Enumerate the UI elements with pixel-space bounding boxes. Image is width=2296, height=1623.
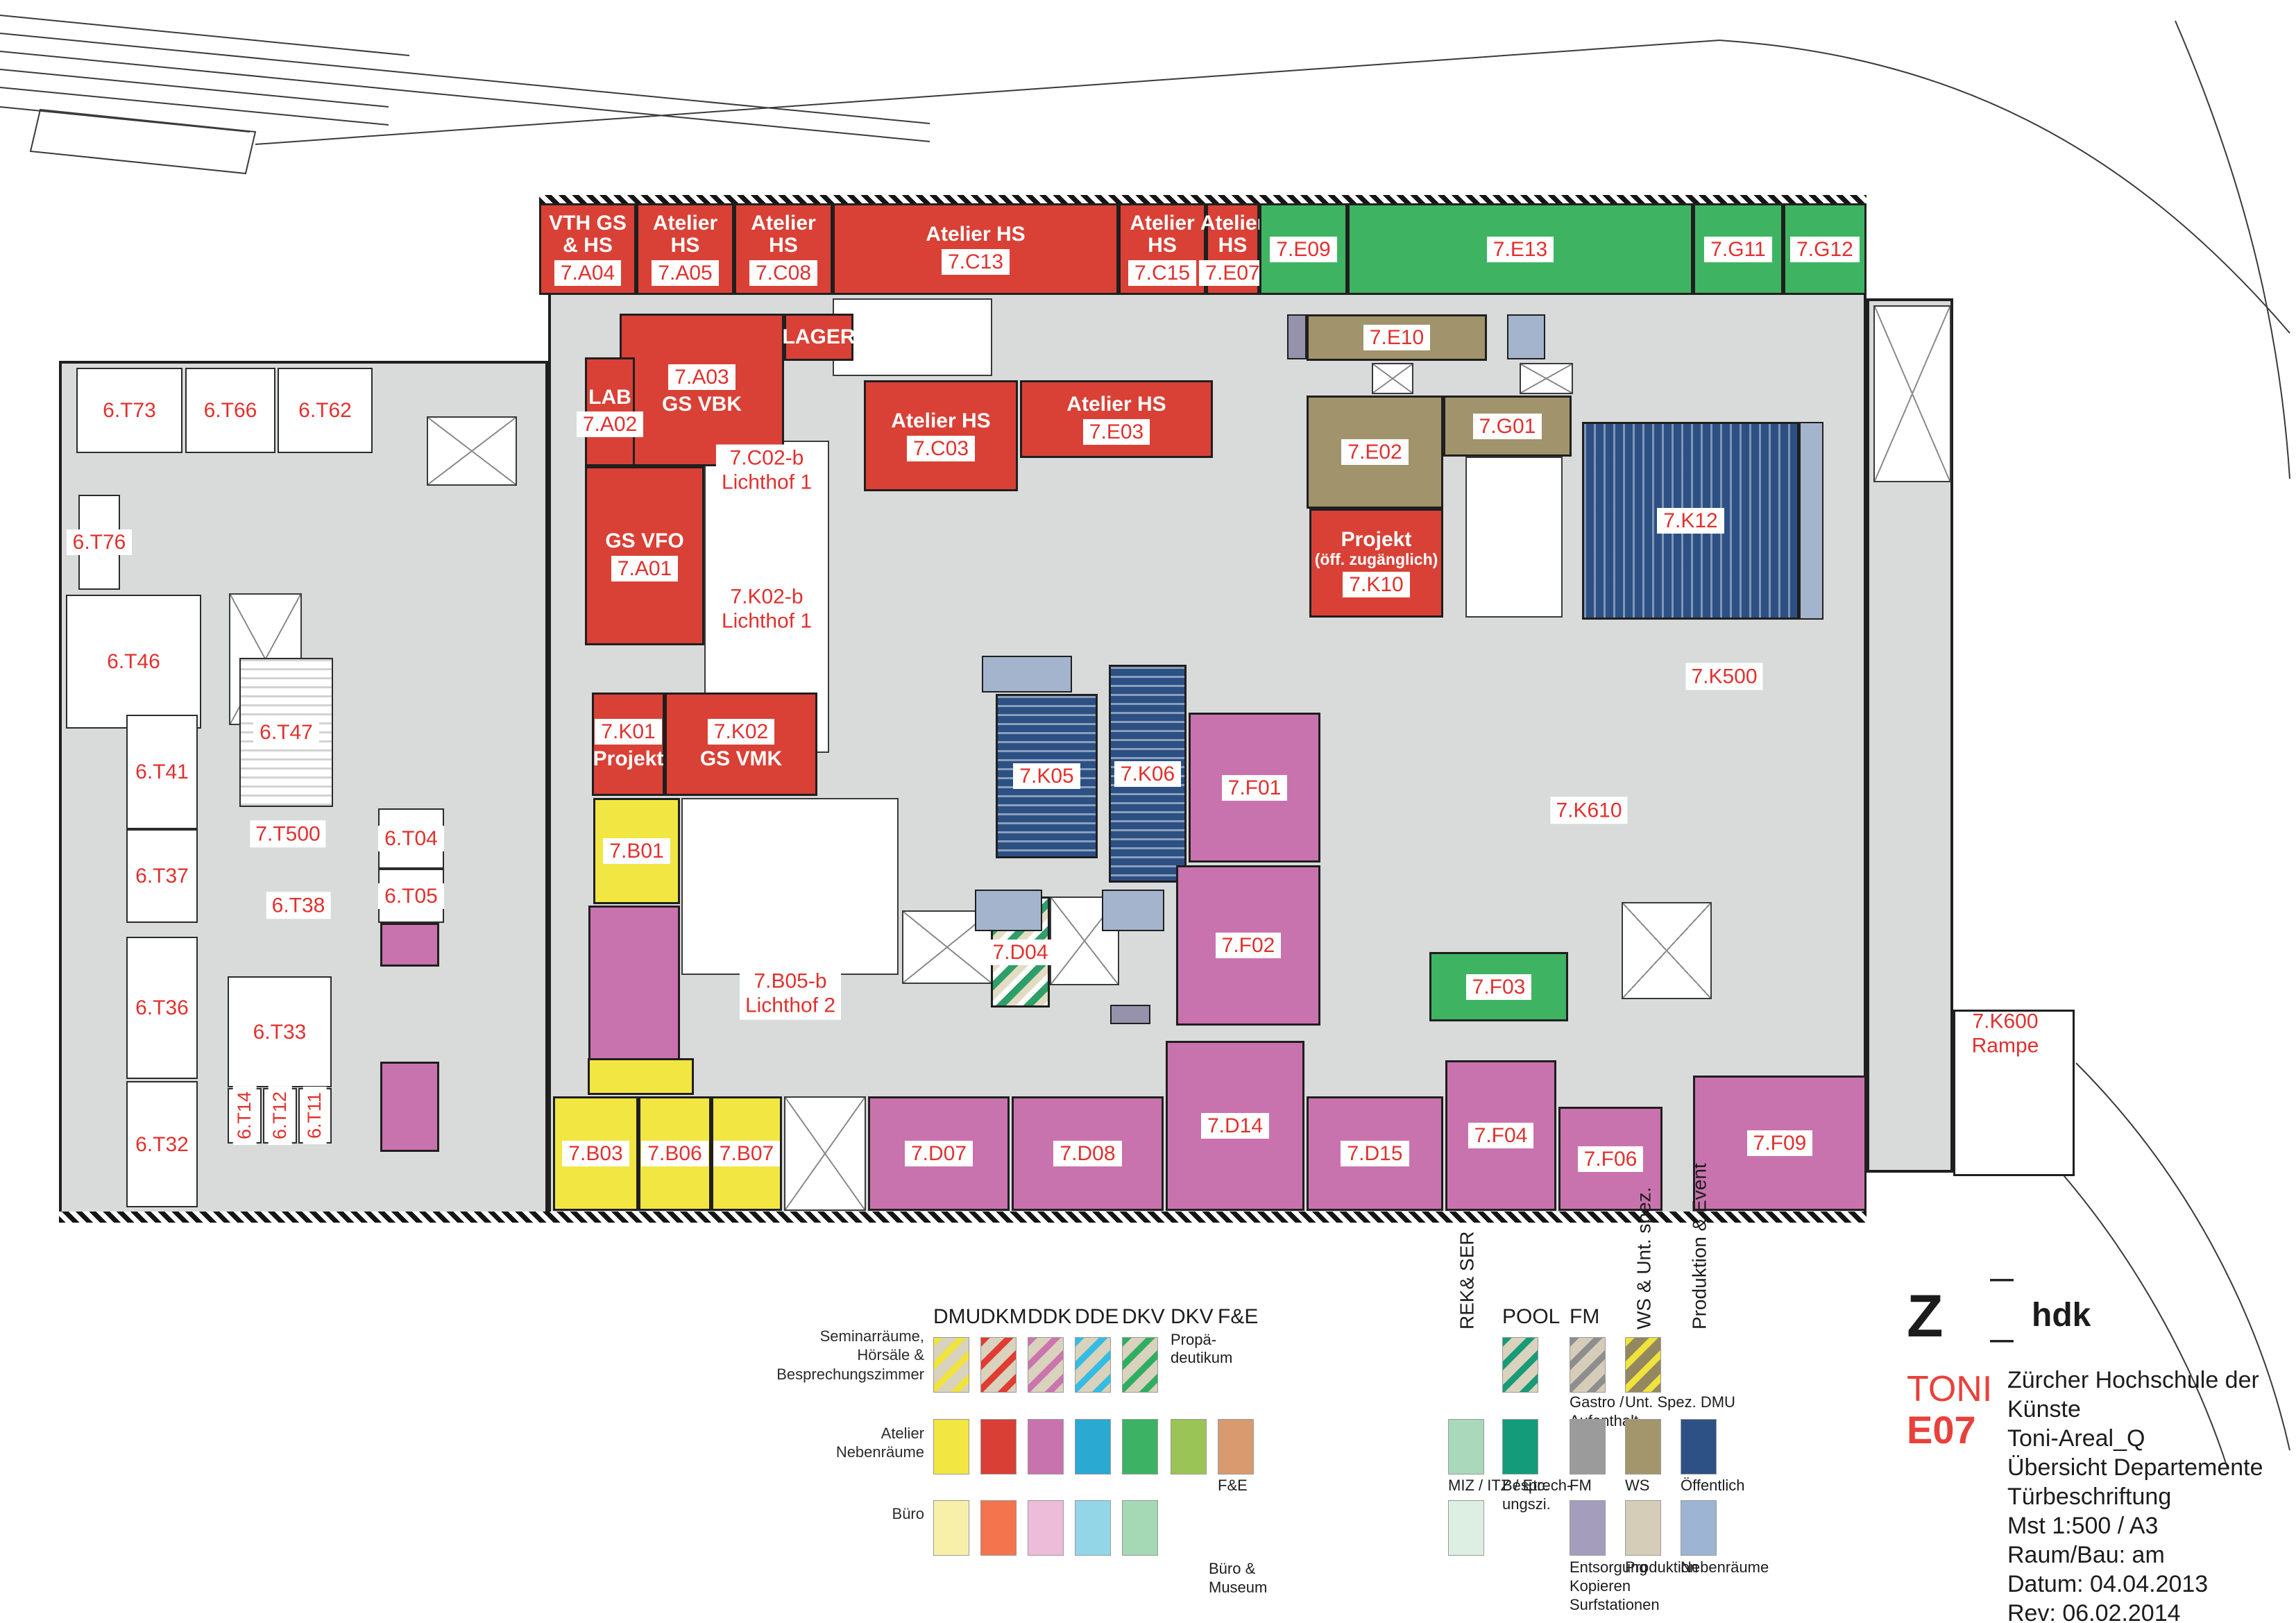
stair-core bbox=[1520, 363, 1573, 394]
room-number-chip: 7.C15 bbox=[1128, 260, 1196, 286]
logo-dash-top: — bbox=[1990, 1266, 2014, 1293]
room-number-chip: 7.B06 bbox=[641, 1141, 708, 1166]
room-number-chip: 7.K01 bbox=[595, 719, 661, 745]
room-6.T04: 6.T04 bbox=[378, 808, 444, 869]
room-7.E07: Atelier HS7.E07 bbox=[1206, 203, 1259, 295]
meta-line: Rev: 06.02.2014 bbox=[2007, 1599, 2208, 1623]
logo-dash-bottom: — bbox=[1990, 1327, 2014, 1354]
legend-swatch bbox=[1028, 1337, 1064, 1393]
room-block bbox=[1102, 890, 1164, 931]
legend-swatch-label: Nebenräume bbox=[1681, 1558, 1769, 1577]
room-block bbox=[975, 890, 1042, 931]
legend-column-header: F&E bbox=[1218, 1306, 1258, 1328]
room-block bbox=[1799, 422, 1823, 620]
room-7.C03: Atelier HS7.C03 bbox=[864, 380, 1018, 491]
room-name-label: GS VFO bbox=[605, 530, 683, 552]
room-number-chip: 7.A04 bbox=[554, 260, 621, 286]
stair-core bbox=[1873, 305, 1951, 482]
room-number-chip: 7.B07 bbox=[713, 1141, 780, 1166]
room-6.T11: 6.T11 bbox=[298, 1088, 332, 1144]
room-name-label: Projekt bbox=[593, 748, 664, 770]
room-7.F03: 7.F03 bbox=[1429, 952, 1568, 1021]
room-7.E03: Atelier HS7.E03 bbox=[1020, 380, 1213, 458]
room-number-chip: 7.G12 bbox=[1790, 237, 1860, 262]
legend-swatch bbox=[980, 1419, 1017, 1475]
org-line: Toni-Areal_Q bbox=[2007, 1424, 2296, 1453]
room-7.A05: Atelier HS7.A05 bbox=[636, 203, 734, 295]
stair-core bbox=[1622, 902, 1712, 999]
legend-caption: Büro & Museum bbox=[1209, 1560, 1267, 1597]
legend-swatch bbox=[933, 1500, 969, 1556]
room-6.T36: 6.T36 bbox=[126, 937, 198, 1079]
room-name-label: GS VBK bbox=[662, 393, 742, 416]
legend-column-header: POOL bbox=[1502, 1306, 1560, 1328]
legend-column-header: DKV bbox=[1171, 1306, 1214, 1328]
area-label: 7.K610 bbox=[1550, 797, 1627, 824]
legend-swatch bbox=[1681, 1500, 1717, 1556]
legend-swatch bbox=[1570, 1337, 1606, 1393]
room-7.D15: 7.D15 bbox=[1307, 1096, 1443, 1211]
courtyard bbox=[833, 298, 992, 376]
legend-swatch-label: FM bbox=[1570, 1477, 1592, 1495]
room-7.D08: 7.D08 bbox=[1012, 1096, 1164, 1211]
room-7.G12: 7.G12 bbox=[1783, 203, 1866, 295]
legend-column-header: DDE bbox=[1075, 1306, 1119, 1328]
legend-swatch bbox=[1075, 1337, 1111, 1393]
room-7.K02: 7.K02GS VMK bbox=[665, 692, 817, 796]
room-7.F01: 7.F01 bbox=[1189, 713, 1320, 863]
area-label: 7.K02-b Lichthof 1 bbox=[716, 584, 817, 636]
room-7.F02: 7.F02 bbox=[1176, 865, 1320, 1026]
room-number-chip: 6.T76 bbox=[67, 529, 133, 555]
legend-swatch bbox=[1075, 1419, 1111, 1475]
room-name-label: Atelier HS bbox=[736, 212, 831, 257]
courtyard bbox=[1465, 457, 1563, 618]
room-number-chip: 7.E07 bbox=[1199, 260, 1266, 286]
room-7.E10: 7.E10 bbox=[1307, 314, 1487, 361]
room-number-chip: 7.K12 bbox=[1657, 508, 1724, 534]
zhdk-logo-icon: Z bbox=[1907, 1282, 1941, 1351]
room-number-chip: 7.A01 bbox=[611, 556, 678, 581]
area-label: 7.K600 Rampe bbox=[1966, 1008, 2045, 1060]
legend-swatch bbox=[1122, 1337, 1158, 1393]
room-number-chip: 7.B01 bbox=[603, 838, 670, 864]
legend-swatch bbox=[1502, 1419, 1538, 1475]
legend-swatch-label: F&E bbox=[1218, 1477, 1248, 1495]
legend-swatch bbox=[1028, 1500, 1064, 1556]
room-number-chip: 6.T47 bbox=[253, 720, 319, 745]
room-number-chip: 7.A02 bbox=[577, 411, 643, 437]
legend-swatch bbox=[1122, 1500, 1158, 1556]
legend-row-label: Atelier Nebenräume bbox=[716, 1424, 924, 1462]
legend-column-header: WS & Unt. spez. bbox=[1619, 1163, 1668, 1329]
room-7.K05: 7.K05 bbox=[996, 694, 1098, 858]
legend-swatch-label: Besprech- ungszi. bbox=[1502, 1477, 1572, 1514]
room-7.B01: 7.B01 bbox=[593, 798, 680, 904]
legend-swatch bbox=[1448, 1500, 1484, 1556]
room-number-chip: 7.G01 bbox=[1473, 414, 1542, 439]
room-number-chip: 7.E09 bbox=[1270, 237, 1336, 262]
legend-swatch bbox=[1681, 1419, 1717, 1475]
legend-column-header: DDK bbox=[1028, 1306, 1071, 1328]
legend-column-header: DKV bbox=[1122, 1306, 1165, 1328]
legend-column-header: Produktion & Event bbox=[1675, 1163, 1724, 1329]
room-name-label: Atelier HS bbox=[1200, 212, 1265, 257]
room-7.K10: Projekt(öff. zugänglich)7.K10 bbox=[1309, 509, 1443, 618]
legend-column-header: FM bbox=[1570, 1306, 1599, 1328]
legend-swatch bbox=[933, 1419, 969, 1475]
room-number-chip: 7.K05 bbox=[1013, 763, 1080, 789]
room-7.C13: Atelier HS7.C13 bbox=[833, 203, 1119, 295]
room-7.C08: Atelier HS7.C08 bbox=[734, 203, 833, 295]
room-7.C15: Atelier HS7.C15 bbox=[1119, 203, 1206, 295]
room-7.A03: 7.A03GS VBK bbox=[620, 314, 784, 466]
org-line: Zürcher Hochschule der Künste bbox=[2007, 1366, 2296, 1424]
project-description: Zürcher Hochschule der Künste Toni-Areal… bbox=[2007, 1366, 2296, 1511]
room-7.A01: GS VFO7.A01 bbox=[585, 466, 704, 645]
room-number-chip: 7.F03 bbox=[1466, 974, 1532, 1000]
room-6.T41: 6.T41 bbox=[126, 715, 198, 829]
room-block bbox=[982, 656, 1072, 692]
room-number-chip: 7.B03 bbox=[562, 1141, 629, 1166]
room-name-label: Projekt(öff. zugänglich) bbox=[1315, 529, 1438, 568]
legend-column-header: DKM bbox=[980, 1306, 1027, 1328]
room-number-chip: 6.T41 bbox=[129, 759, 195, 785]
room-7.B06: 7.B06 bbox=[638, 1096, 711, 1211]
room-number-chip: 7.F01 bbox=[1222, 775, 1288, 801]
room-6.T66: 6.T66 bbox=[185, 368, 275, 453]
room-name-label: Atelier HS bbox=[891, 410, 990, 432]
room-number-chip: 7.D14 bbox=[1201, 1113, 1269, 1139]
legend-swatch bbox=[980, 1337, 1017, 1393]
area-label: 7.B05-b Lichthof 2 bbox=[740, 968, 841, 1020]
room-7.E09: 7.E09 bbox=[1259, 203, 1347, 295]
room-6.T14: 6.T14 bbox=[228, 1088, 262, 1144]
room-number-chip: 7.A05 bbox=[652, 260, 718, 286]
legend-swatch bbox=[1028, 1419, 1064, 1475]
room-block bbox=[588, 906, 680, 1081]
facade-hatch-band bbox=[539, 195, 1866, 203]
room-block bbox=[380, 923, 439, 967]
room-6.T32: 6.T32 bbox=[126, 1081, 198, 1207]
org-line: Türbeschriftung bbox=[2007, 1482, 2296, 1511]
stair-core bbox=[1372, 363, 1413, 394]
legend-swatch bbox=[1448, 1419, 1484, 1475]
room-6.T73: 6.T73 bbox=[76, 368, 182, 453]
legend-swatch bbox=[1625, 1419, 1661, 1475]
legend-column-header: DMU bbox=[933, 1306, 980, 1328]
room-number-chip: 6.T14 bbox=[233, 1086, 257, 1145]
area-label: 7.K500 bbox=[1685, 663, 1762, 690]
room-7.K06: 7.K06 bbox=[1109, 665, 1187, 883]
room-7.D14: 7.D14 bbox=[1166, 1041, 1304, 1211]
legend-swatch bbox=[1502, 1337, 1538, 1393]
room-6.T76: 6.T76 bbox=[78, 495, 120, 590]
legend-swatch bbox=[1570, 1500, 1606, 1556]
room-number-chip: 6.T66 bbox=[198, 398, 264, 423]
room-LAGER: LAGER bbox=[784, 314, 853, 361]
legend-column-header: REK& SER bbox=[1443, 1163, 1491, 1329]
legend-row-label: Büro bbox=[716, 1504, 924, 1523]
legend-swatch bbox=[1625, 1337, 1661, 1393]
room-6.T46: 6.T46 bbox=[66, 595, 201, 729]
room-7.B03: 7.B03 bbox=[553, 1096, 638, 1211]
room-number-chip: 6.T12 bbox=[269, 1086, 292, 1145]
room-6.T62: 6.T62 bbox=[278, 368, 373, 453]
room-number-chip: 7.E02 bbox=[1341, 439, 1408, 465]
area-label: 6.T38 bbox=[266, 892, 331, 919]
room-name-label: VTH GS & HS bbox=[541, 212, 634, 257]
room-name-label: Atelier HS bbox=[926, 223, 1025, 246]
legend-swatch bbox=[1570, 1419, 1606, 1475]
area-label: 7.C02-b Lichthof 1 bbox=[716, 445, 817, 497]
hdk-logo-text: hdk bbox=[2032, 1296, 2091, 1334]
room-name-label: Atelier HS bbox=[638, 212, 732, 257]
room-7.B07: 7.B07 bbox=[711, 1096, 782, 1211]
room-number-chip: 6.T05 bbox=[378, 883, 444, 909]
legend-swatch bbox=[1218, 1419, 1254, 1475]
room-number-chip: 7.D08 bbox=[1053, 1141, 1121, 1166]
meta-line: Datum: 04.04.2013 bbox=[2007, 1570, 2208, 1599]
room-number-chip: 6.T11 bbox=[303, 1087, 327, 1144]
room-number-chip: 7.E03 bbox=[1083, 419, 1150, 445]
room-number-chip: 6.T73 bbox=[96, 398, 162, 423]
legend-swatch bbox=[1171, 1419, 1207, 1475]
room-7.K12: 7.K12 bbox=[1582, 422, 1799, 620]
room-7.D07: 7.D07 bbox=[868, 1096, 1010, 1211]
room-7.E02: 7.E02 bbox=[1307, 396, 1443, 509]
room-number-chip: 7.C03 bbox=[907, 436, 975, 461]
room-number-chip: 7.D07 bbox=[905, 1141, 973, 1166]
room-block bbox=[588, 1058, 694, 1095]
room-6.T33: 6.T33 bbox=[228, 976, 332, 1087]
legend-swatch-label: Öffentlich bbox=[1681, 1477, 1745, 1495]
legend-swatch bbox=[1075, 1500, 1111, 1556]
room-6.T37: 6.T37 bbox=[126, 829, 198, 923]
legend-row-label: Seminarräume, Hörsäle & Besprechungszimm… bbox=[716, 1327, 924, 1384]
room-number-chip: 7.G11 bbox=[1704, 237, 1772, 262]
room-6.T47: 6.T47 bbox=[239, 658, 333, 807]
room-number-chip: 6.T04 bbox=[378, 826, 444, 851]
room-name-label: GS VMK bbox=[700, 748, 782, 770]
drawing-meta: Mst 1:500 / A3 Raum/Bau: am Datum: 04.04… bbox=[2007, 1511, 2208, 1623]
room-number-chip: 7.C08 bbox=[749, 260, 817, 286]
site-code: TONI bbox=[1907, 1368, 1992, 1410]
room-number-chip: 6.T33 bbox=[247, 1019, 313, 1045]
room-7.K01: 7.K01Projekt bbox=[592, 692, 665, 796]
room-number-chip: 6.T32 bbox=[129, 1132, 195, 1157]
legend-swatch-label: WS bbox=[1625, 1477, 1649, 1495]
room-7.A04: VTH GS & HS7.A04 bbox=[539, 203, 636, 295]
room-number-chip: 7.K06 bbox=[1114, 761, 1181, 787]
room-number-chip: 7.K10 bbox=[1343, 572, 1409, 597]
room-number-chip: 7.E10 bbox=[1363, 325, 1430, 350]
room-6.T05: 6.T05 bbox=[378, 869, 444, 923]
room-name-label: Atelier HS bbox=[1121, 212, 1204, 257]
org-line: Übersicht Departemente bbox=[2007, 1453, 2296, 1482]
area-label: 7.T500 bbox=[250, 820, 325, 847]
room-name-label: Atelier HS bbox=[1066, 393, 1166, 416]
room-number-chip: 7.F09 bbox=[1747, 1130, 1813, 1156]
room-6.T12: 6.T12 bbox=[263, 1088, 297, 1144]
room-block bbox=[1287, 314, 1307, 359]
room-number-chip: 7.F04 bbox=[1468, 1123, 1534, 1148]
floor-code: E07 bbox=[1907, 1407, 1976, 1452]
room-block bbox=[1110, 1005, 1150, 1024]
room-7.G01: 7.G01 bbox=[1443, 396, 1572, 457]
room-7.A02: LAB7.A02 bbox=[585, 357, 635, 466]
room-name-sub-label: (öff. zugänglich) bbox=[1315, 551, 1438, 568]
room-number-chip: 7.E13 bbox=[1487, 237, 1554, 262]
room-7.G11: 7.G11 bbox=[1693, 203, 1783, 295]
room-number-chip: 6.T62 bbox=[292, 398, 358, 423]
legend-swatch bbox=[1625, 1500, 1661, 1556]
room-name-label: LAB bbox=[588, 386, 631, 409]
legend-swatch-label: Unt. Spez. DMU bbox=[1625, 1393, 1735, 1412]
room-block bbox=[380, 1062, 439, 1152]
room-number-chip: 7.K02 bbox=[708, 719, 774, 745]
stair-core bbox=[784, 1096, 866, 1211]
room-name-label: LAGER bbox=[783, 326, 856, 348]
room-block bbox=[1507, 314, 1545, 359]
room-number-chip: 7.F02 bbox=[1216, 933, 1282, 958]
room-number-chip: 6.T36 bbox=[129, 995, 195, 1021]
legend-swatch bbox=[980, 1500, 1017, 1556]
room-number-chip: 7.A03 bbox=[668, 364, 735, 390]
room-number-chip: 6.T37 bbox=[129, 863, 195, 889]
room-number-chip: 6.T46 bbox=[101, 649, 167, 674]
legend-swatch bbox=[1122, 1419, 1158, 1475]
stair-core bbox=[427, 416, 517, 486]
legend-swatch bbox=[933, 1337, 969, 1393]
meta-line: Raum/Bau: am bbox=[2007, 1540, 2208, 1570]
room-7.E13: 7.E13 bbox=[1347, 203, 1693, 295]
floorplan-page: VTH GS & HS7.A04Atelier HS7.A05Atelier H… bbox=[0, 0, 2296, 1623]
courtyard bbox=[681, 798, 899, 975]
legend-column-subheader: Propä- deutikum bbox=[1171, 1331, 1232, 1368]
room-number-chip: 7.C13 bbox=[942, 249, 1010, 275]
facade-hatch-band bbox=[59, 1212, 1866, 1223]
room-number-chip: 7.D04 bbox=[986, 940, 1054, 965]
meta-line: Mst 1:500 / A3 bbox=[2007, 1511, 2208, 1540]
room-number-chip: 7.D15 bbox=[1341, 1141, 1409, 1166]
